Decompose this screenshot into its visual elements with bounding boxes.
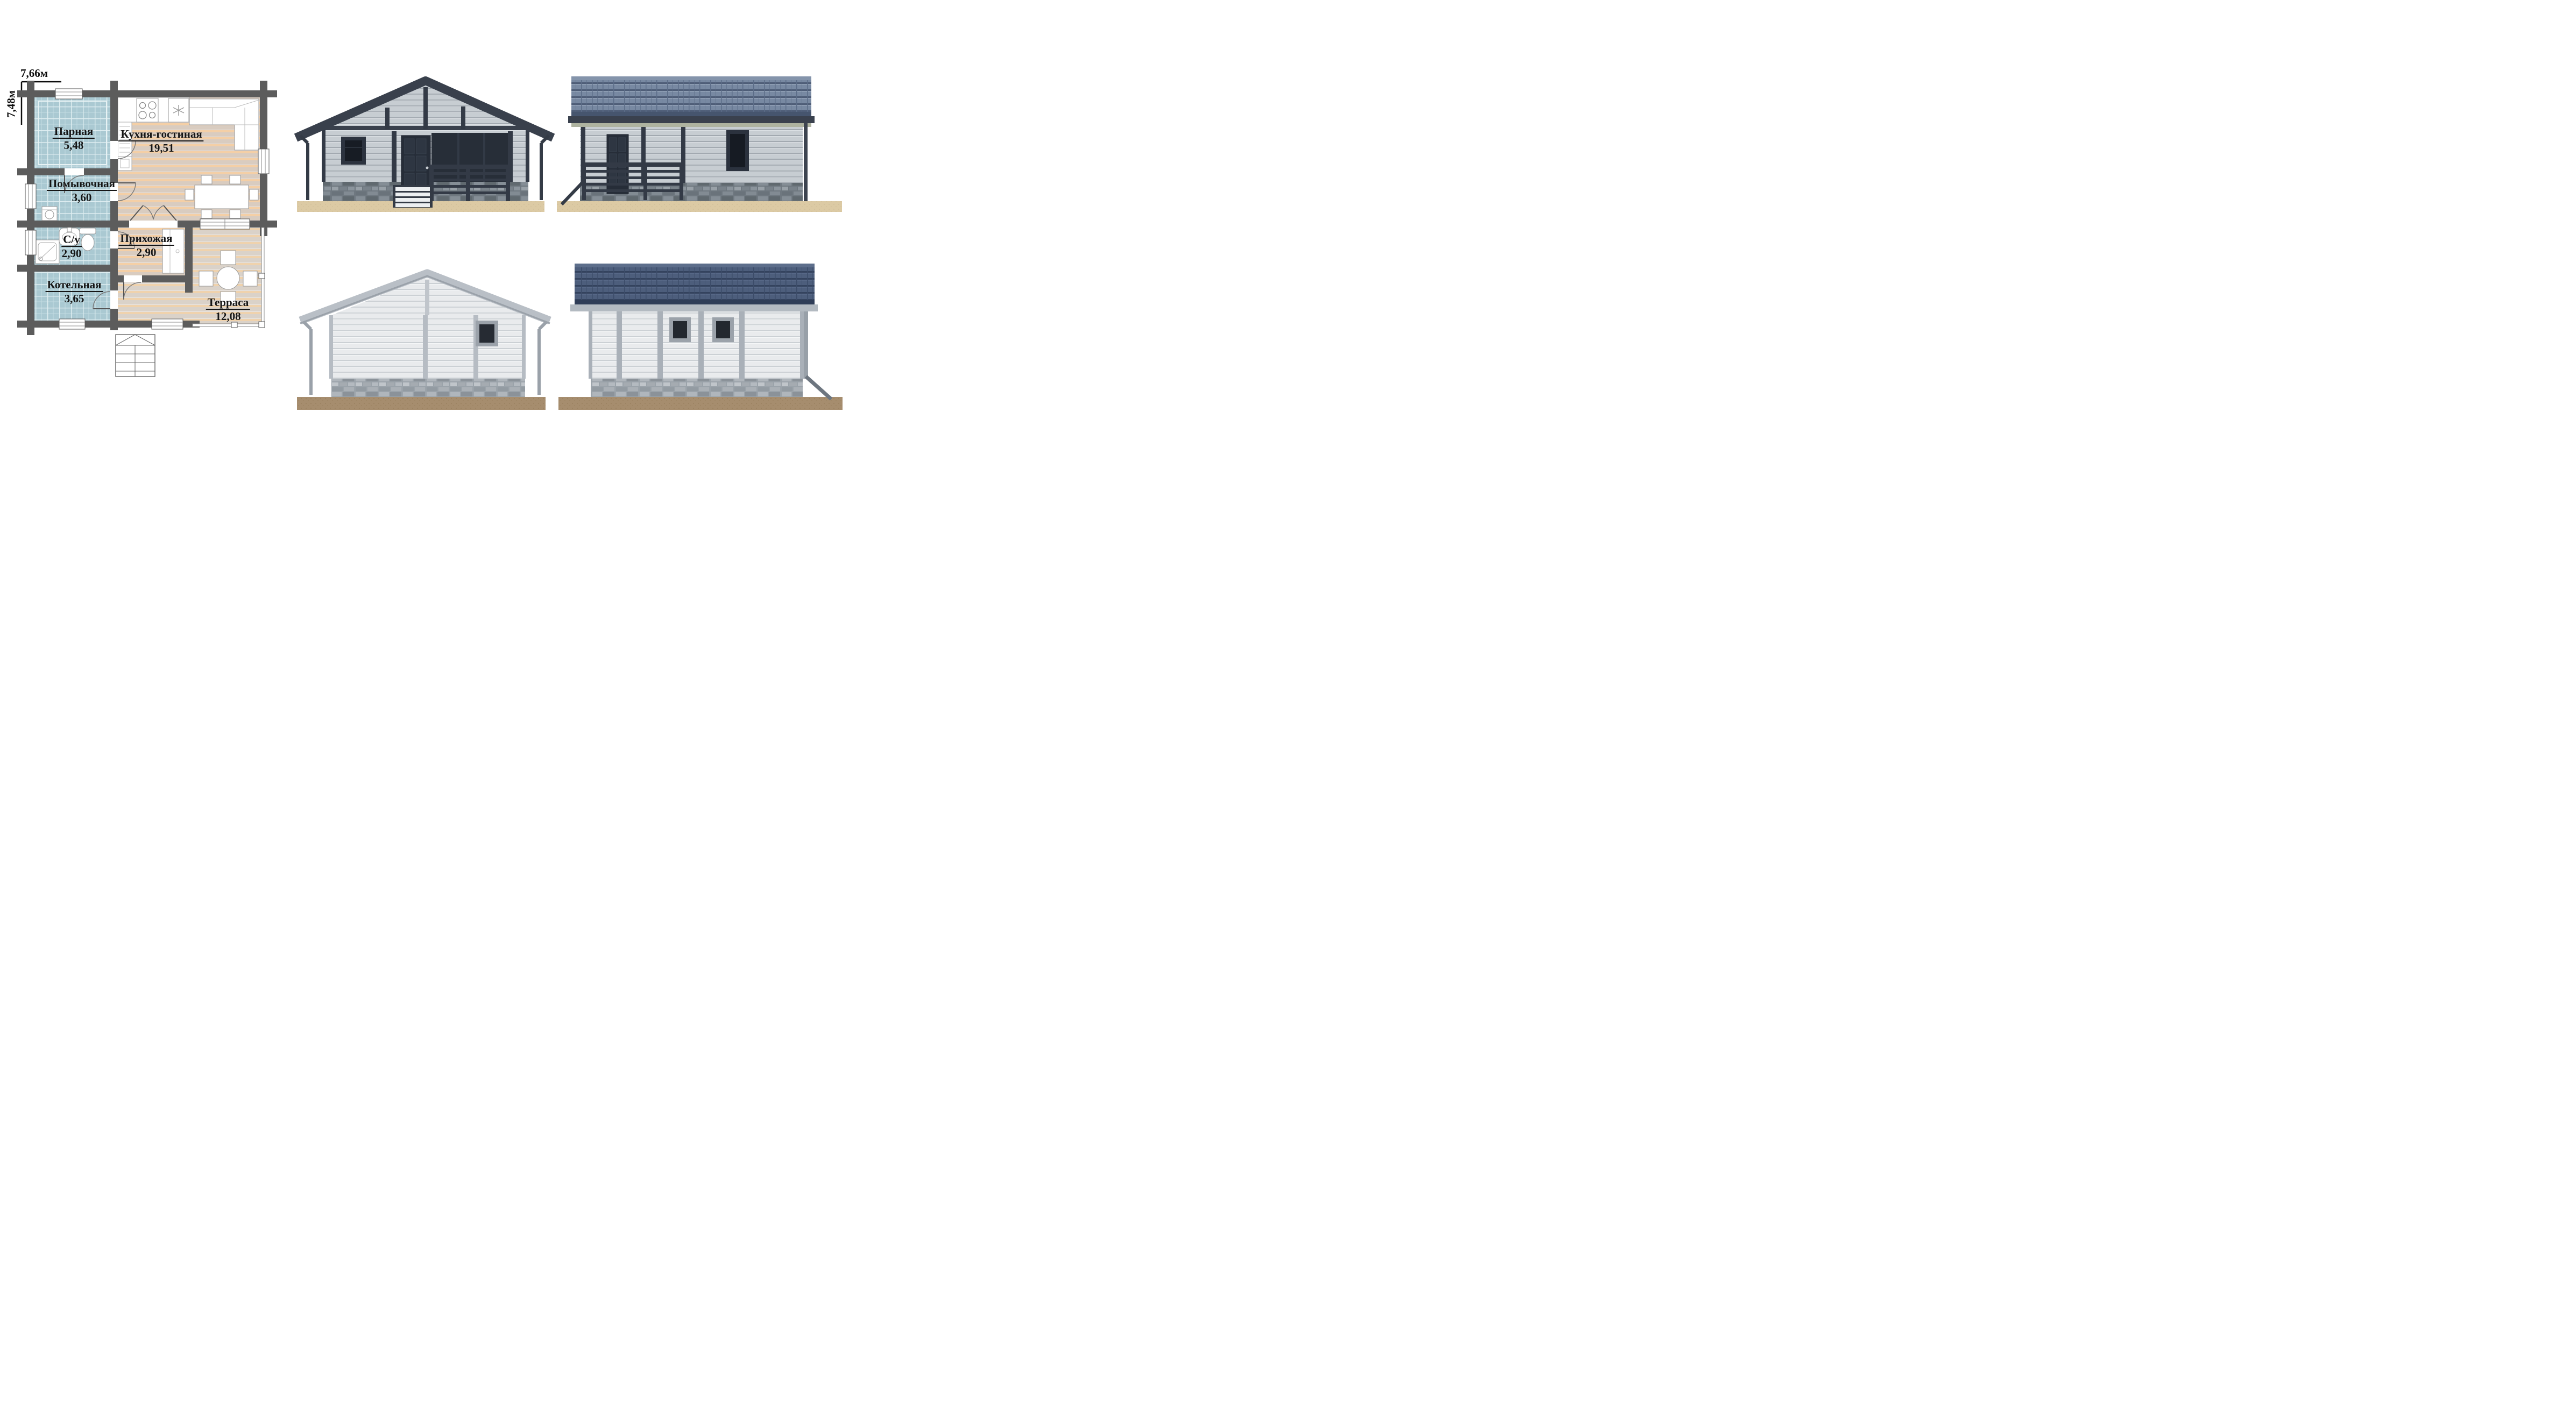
render-side-elevation-windows: [558, 264, 843, 410]
room-area: 19,51: [119, 141, 203, 155]
stove-symbol: [137, 98, 158, 122]
roof-fascia: [568, 116, 815, 123]
room-name: Парная: [53, 125, 95, 139]
washing-machine-symbol: [42, 207, 57, 221]
window-symbol: [200, 219, 250, 229]
door-handle: [426, 167, 429, 169]
window-symbol: [25, 184, 36, 209]
window-symbol: [258, 149, 269, 174]
terrace-post: [259, 322, 265, 328]
render-rear-elevation: [297, 273, 550, 410]
room-name: Кухня-гостиная: [119, 128, 203, 141]
room-name: Помывочная: [47, 177, 117, 191]
sink-symbol: [168, 98, 189, 122]
window-symbol: [152, 319, 183, 329]
entry-steps: [393, 185, 433, 208]
roof-fascia: [570, 304, 818, 311]
terrace-post: [259, 273, 265, 279]
window-symbol: [25, 230, 36, 255]
window: [669, 317, 691, 342]
room-name: Котельная: [46, 279, 103, 292]
window-symbol: [59, 319, 85, 329]
architectural-sheet: 7,66м 7,48м Парная 5,48 Кухня-гостиная 1…: [0, 0, 859, 473]
roof-ridge: [575, 264, 815, 267]
downpipe: [804, 311, 831, 399]
window: [712, 317, 734, 342]
roof-ridge: [571, 76, 811, 80]
stone-foundation: [591, 379, 803, 397]
terrace-round-table: [217, 267, 239, 289]
room-label-terrasa: Терраса 12,08: [206, 296, 250, 323]
soffit: [571, 123, 811, 127]
room-area: 2,90: [119, 246, 174, 259]
ground-soil: [297, 397, 546, 410]
plan-width-dimension: 7,66м: [20, 67, 48, 80]
room-area: 2,90: [61, 247, 82, 260]
ground-soil: [558, 397, 843, 410]
room-name: Прихожая: [119, 232, 174, 246]
shower-tray-symbol: [36, 240, 59, 264]
stone-foundation: [331, 379, 525, 397]
room-area: 3,65: [46, 292, 103, 306]
dining-table: [195, 185, 249, 209]
window-symbol: [55, 89, 82, 99]
room-name: Терраса: [206, 296, 250, 310]
tall-window: [726, 130, 749, 171]
render-front-elevation: [296, 81, 553, 212]
room-label-prihozhaya: Прихожая 2,90: [119, 232, 174, 259]
room-label-kotelnaya: Котельная 3,65: [46, 279, 103, 306]
ground-sand: [557, 201, 842, 212]
entry-strip-floor: [118, 282, 193, 321]
roof-tiles: [575, 266, 815, 304]
exterior-stairs: [116, 335, 155, 377]
roof-tiles: [571, 79, 811, 116]
window: [341, 137, 366, 165]
room-area: 12,08: [206, 310, 250, 323]
room-area: 5,48: [53, 139, 95, 152]
render-side-elevation-porch: [557, 76, 842, 212]
wall-siding: [591, 311, 803, 379]
room-name: С/у: [61, 233, 82, 247]
window: [476, 321, 498, 346]
room-area: 3,60: [47, 191, 117, 204]
room-label-parnaya: Парная 5,48: [53, 125, 95, 152]
plan-height-dimension: 7,48м: [5, 83, 18, 126]
room-label-sanuzel: С/у 2,90: [61, 233, 82, 260]
room-label-pomyvochnaya: Помывочная 3,60: [47, 177, 117, 204]
room-label-kuhnya-gostinaya: Кухня-гостиная 19,51: [119, 128, 203, 155]
